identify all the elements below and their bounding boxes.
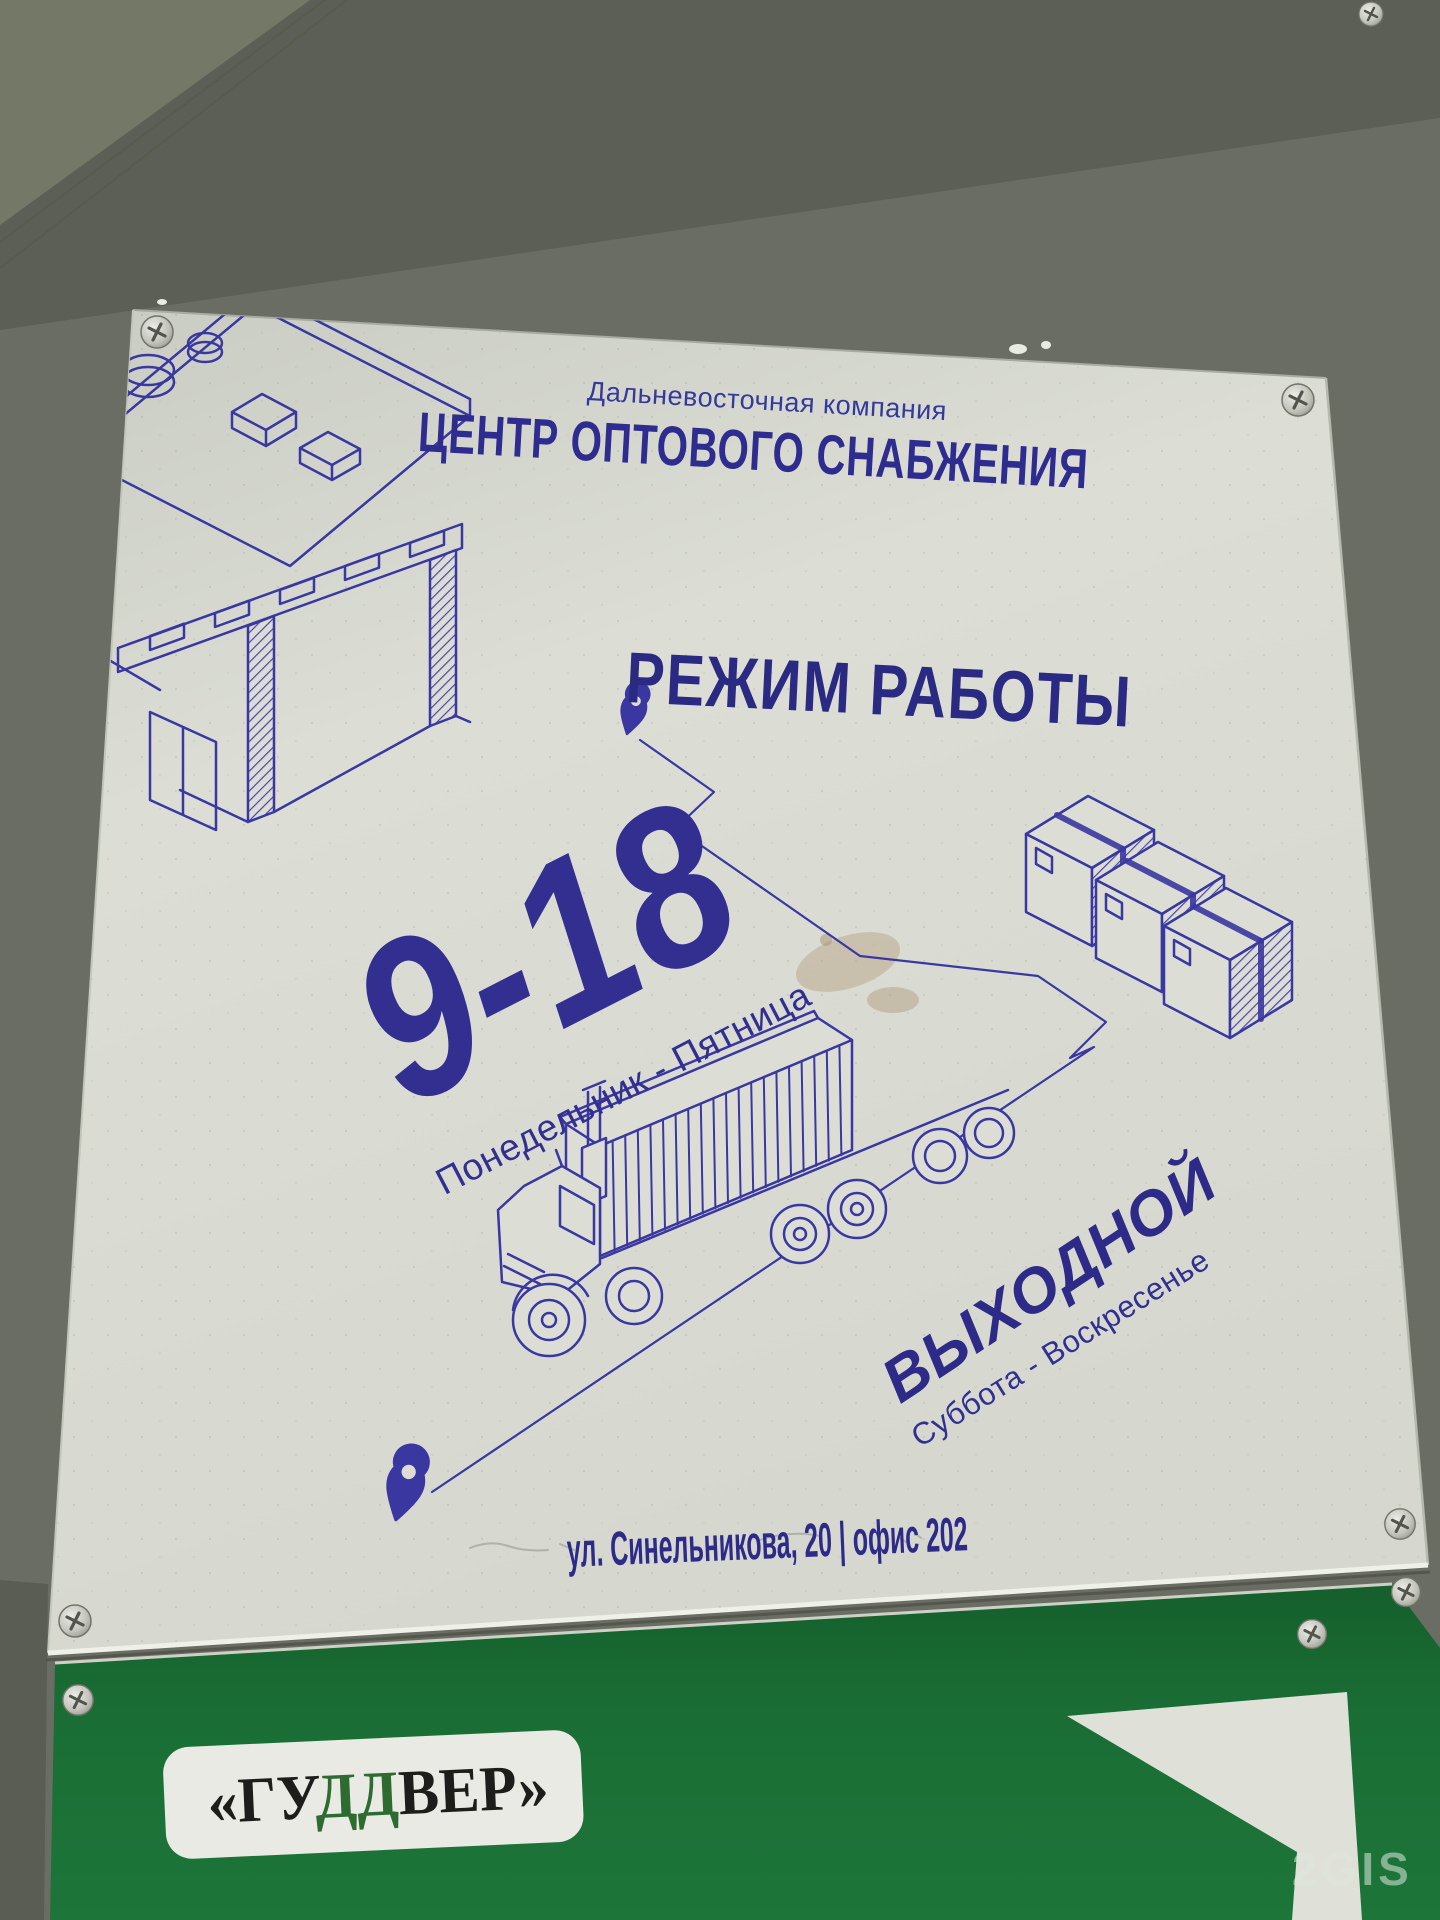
screw-icon [1359,2,1383,26]
paint-chip [1041,341,1051,349]
sign-photo: Дальневосточная компания ЦЕНТР ОПТОВОГО … [0,0,1440,1920]
brand-part-3: ВЕР» [397,1751,550,1829]
screw-icon [63,1685,93,1715]
screw-icon [59,1605,91,1637]
screw-icon [1385,1509,1415,1539]
screw-icon [141,316,173,348]
paint-chip [157,299,167,305]
screw-icon [1392,1578,1421,1607]
screw-icon [1282,384,1314,416]
brand-name: «ГУДДВЕР» [206,1755,550,1834]
screw-icon [1298,1620,1327,1649]
paint-chip [1009,344,1027,354]
brand-part-2: ДД [313,1757,400,1832]
watermark-2gis: 2GIS [1292,1846,1413,1892]
brand-part-1: «ГУ [206,1761,317,1837]
